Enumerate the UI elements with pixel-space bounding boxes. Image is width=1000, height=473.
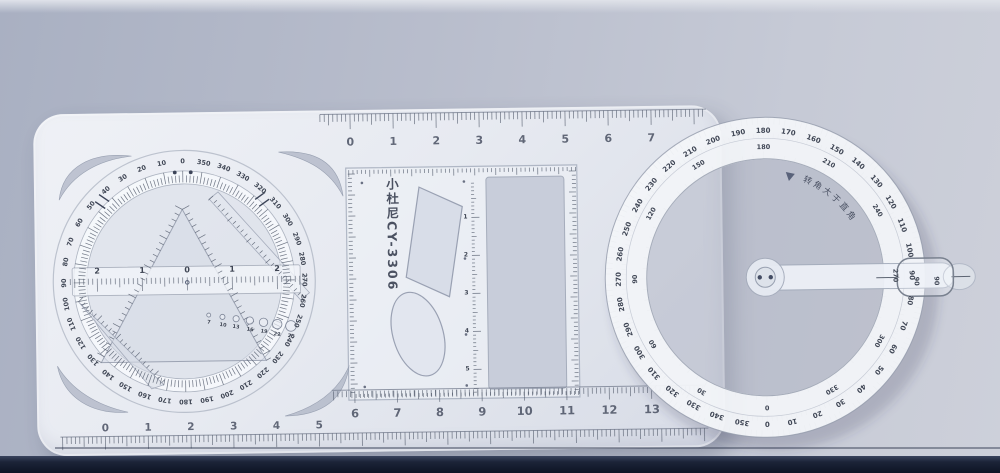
hole-gauge-circle (286, 321, 297, 332)
hole-gauge-circle (233, 316, 239, 322)
hole-gauge-circle (246, 317, 253, 324)
hole-gauge-circle (272, 319, 282, 329)
desk-edge-line (55, 447, 1000, 449)
hole-gauge-circle (259, 318, 268, 327)
ruler-tool: 转角大于直角 小杜尼CY-3306 7101316192225012345676… (0, 0, 1000, 473)
crescent-bottom-left (57, 365, 128, 413)
brand-model-label: 小杜尼CY-3306 (382, 177, 403, 291)
ruler-graphics: 转角大于直角 (0, 0, 1000, 473)
photo-of-drawing-ruler: 转角大于直角 小杜尼CY-3306 7101316192225012345676… (0, 0, 1000, 473)
square-window-cutout (486, 176, 567, 389)
desk-edge-dark-band (0, 456, 1000, 473)
center-stencil-square (346, 165, 580, 400)
hole-gauge-circle (220, 314, 225, 319)
cursor-window (897, 258, 954, 297)
crescent-top-right (278, 151, 343, 197)
hole-gauge-circle (207, 313, 211, 317)
